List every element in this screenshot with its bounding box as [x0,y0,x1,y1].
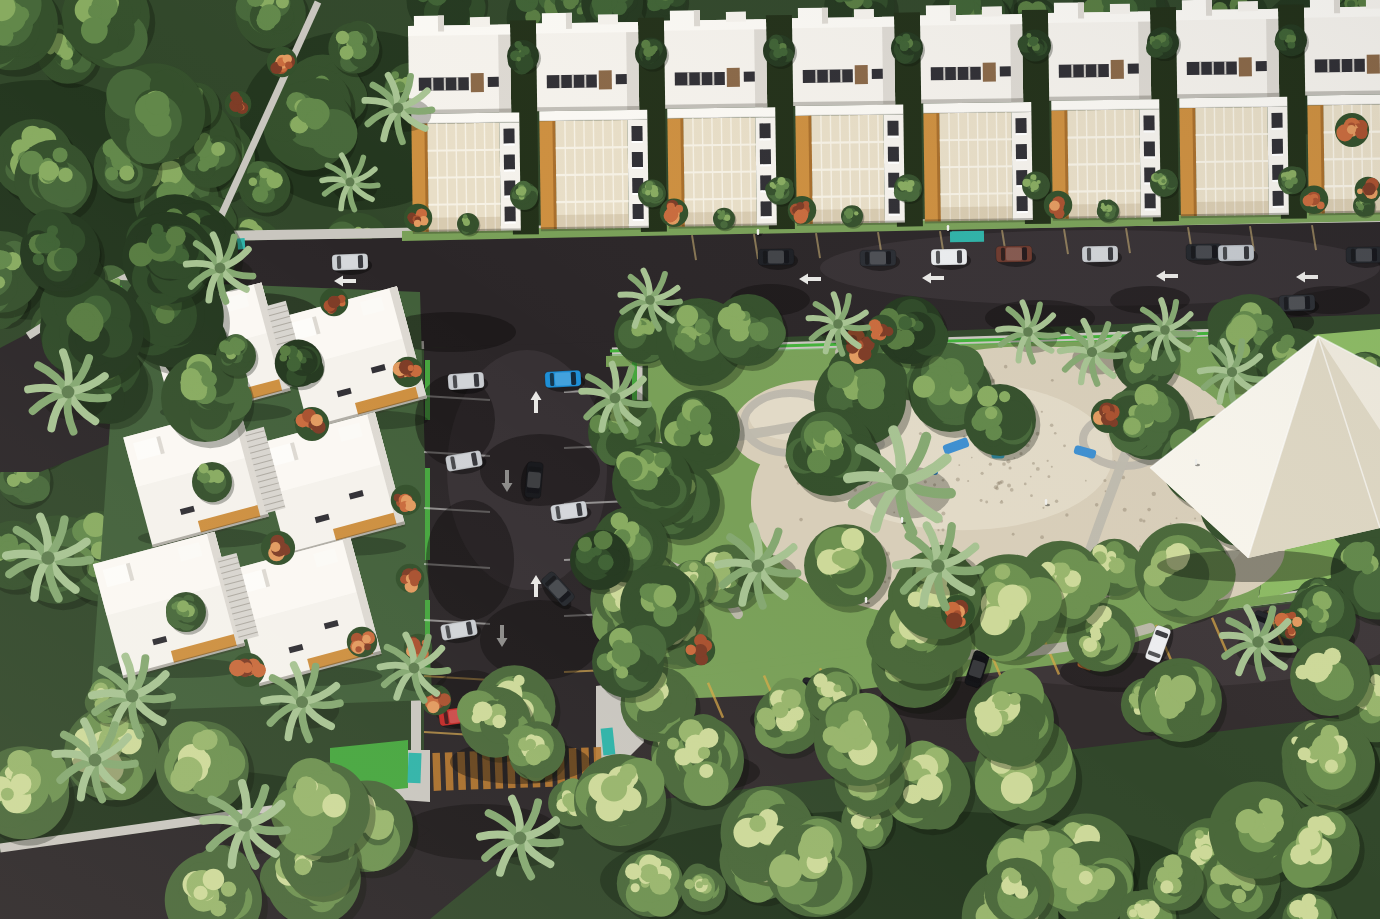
aerial-development-render [0,0,1380,919]
scene-canvas [0,0,1380,919]
light-overlay [0,0,1380,919]
